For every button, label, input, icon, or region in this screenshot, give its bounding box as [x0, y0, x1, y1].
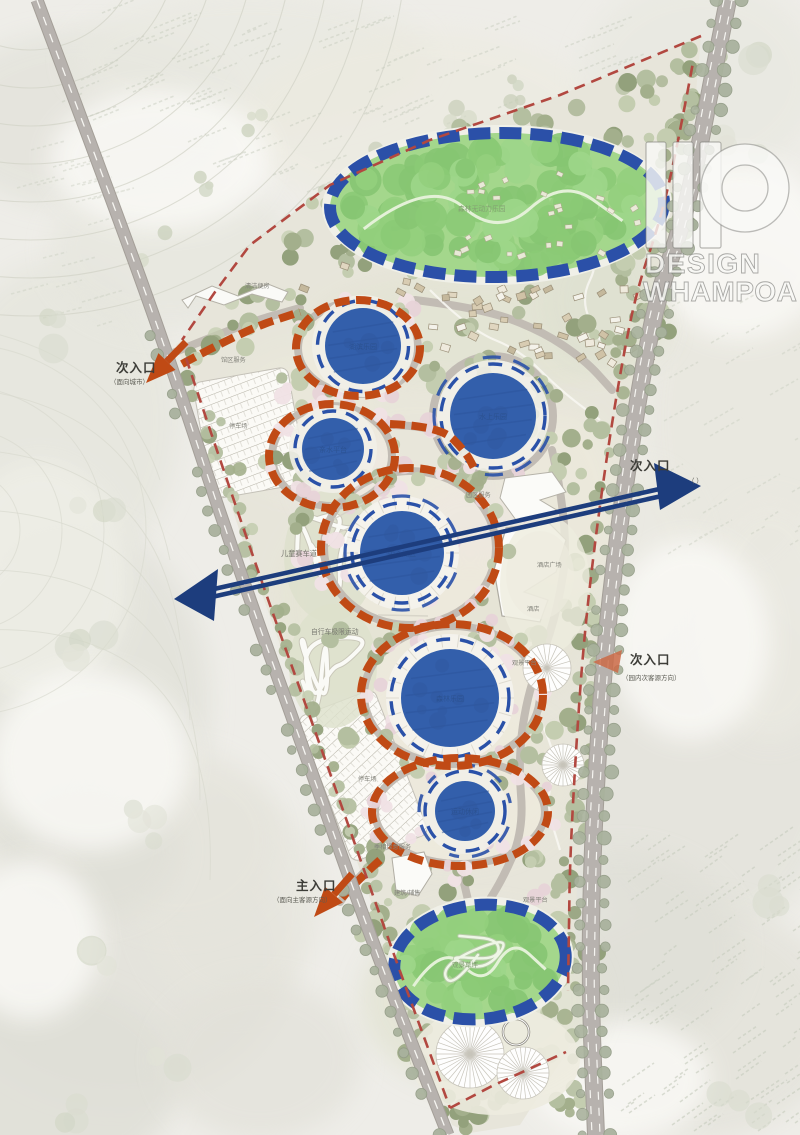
svg-text:次入口: 次入口: [116, 360, 157, 375]
svg-text:（面向城市）: （面向城市）: [110, 377, 149, 386]
svg-text:建筑/辅售: 建筑/辅售: [394, 889, 420, 897]
svg-text:园区服务: 园区服务: [466, 491, 491, 499]
svg-text:观景草坪: 观景草坪: [452, 960, 479, 969]
svg-text:自行车极限运动: 自行车极限运动: [311, 627, 359, 636]
svg-text:（面向主客源方向）: （面向主客源方向）: [273, 895, 332, 904]
svg-text:儿童赛车道: 儿童赛车道: [281, 549, 317, 558]
svg-text:次入口: 次入口: [630, 652, 671, 667]
svg-text:观景平台: 观景平台: [523, 896, 548, 904]
svg-text:次入口: 次入口: [630, 458, 671, 473]
svg-text:酒店广场: 酒店广场: [537, 561, 562, 569]
svg-text:（ ）: （ ）: [688, 477, 703, 485]
svg-text:DESIGN: DESIGN: [645, 248, 761, 279]
svg-text:森林无动力乐园: 森林无动力乐园: [458, 204, 506, 213]
svg-text:观景平台: 观景平台: [512, 659, 537, 667]
svg-text:（园内次客源方向）: （园内次客源方向）: [622, 673, 681, 682]
svg-text:森林乐园: 森林乐园: [436, 694, 464, 703]
svg-text:停车场: 停车场: [358, 775, 377, 783]
svg-text:湖滨乐园: 湖滨乐园: [349, 342, 377, 351]
svg-text:酒店: 酒店: [527, 605, 539, 613]
svg-text:主入口: 主入口: [296, 878, 337, 893]
svg-text:亲水平台: 亲水平台: [319, 445, 347, 454]
svg-text:馆区服务: 馆区服务: [221, 356, 246, 364]
svg-text:WHAMPOA: WHAMPOA: [643, 276, 797, 307]
svg-text:运动休闲: 运动休闲: [451, 807, 479, 816]
svg-text:清洁便房: 清洁便房: [245, 282, 270, 290]
svg-text:季相绿意服务: 季相绿意服务: [374, 843, 411, 851]
svg-text:水上乐园: 水上乐园: [479, 412, 507, 421]
svg-text:停车场: 停车场: [229, 422, 248, 430]
